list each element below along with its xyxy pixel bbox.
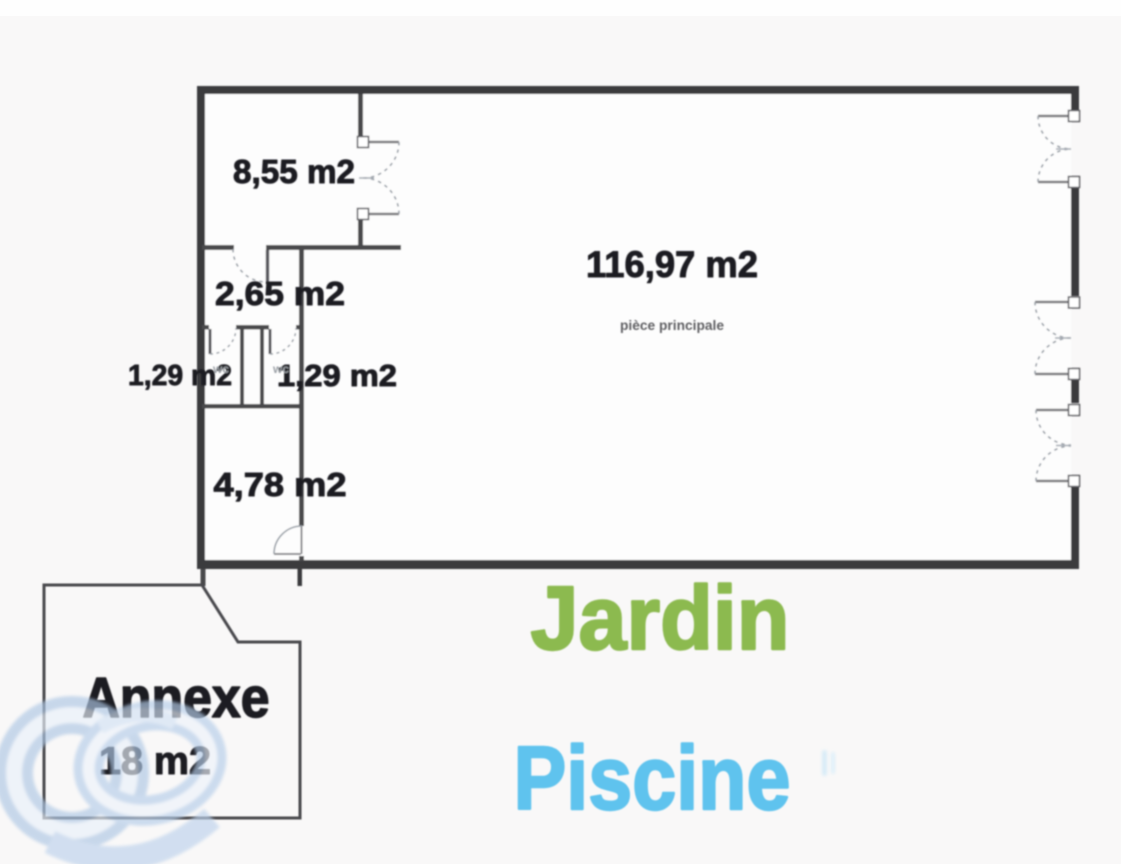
svg-text:4,78 m2: 4,78 m2 <box>214 466 347 503</box>
svg-text:1,29 m2: 1,29 m2 <box>277 358 397 393</box>
svg-text:8,55 m2: 8,55 m2 <box>233 153 355 190</box>
svg-text:wc: wc <box>272 362 289 376</box>
svg-text:pièce principale: pièce principale <box>620 318 724 333</box>
svg-text:Piscine: Piscine <box>514 729 791 829</box>
svg-text:Jardin: Jardin <box>531 569 790 669</box>
svg-text:2,65 m2: 2,65 m2 <box>215 275 345 312</box>
svg-text:116,97 m2: 116,97 m2 <box>586 244 758 285</box>
svg-text:wc: wc <box>212 362 229 376</box>
